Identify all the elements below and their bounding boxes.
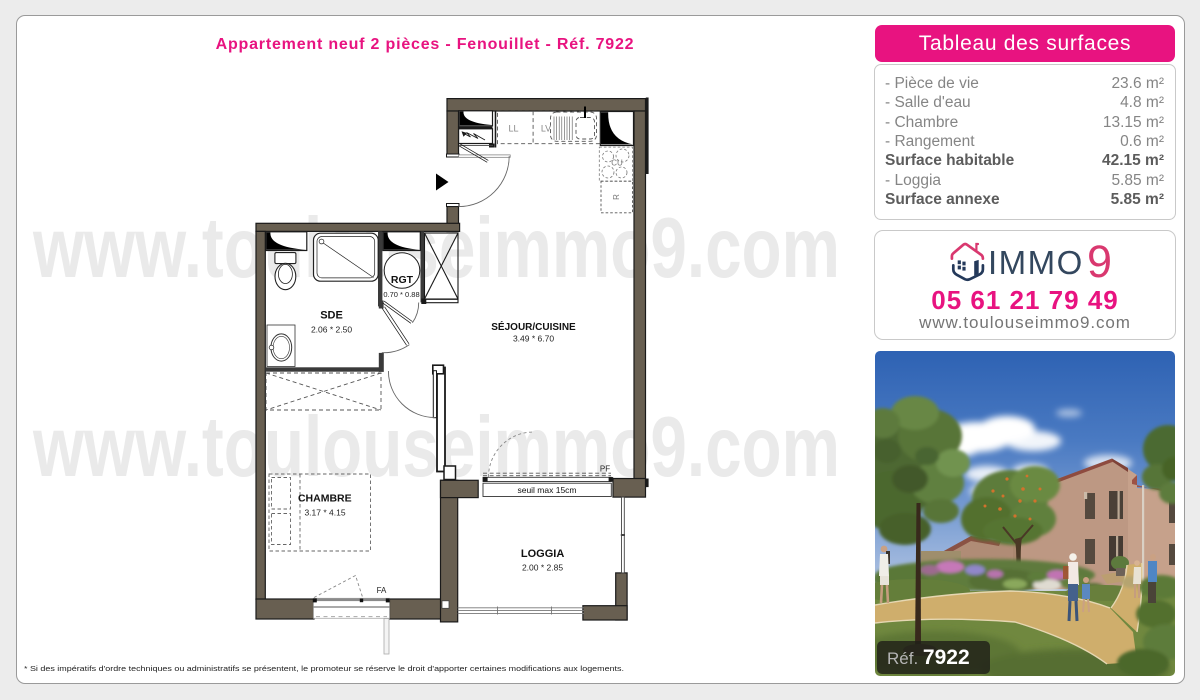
svg-text:* Si des impératifs d'ordre te: * Si des impératifs d'ordre techniques o… — [24, 664, 624, 673]
svg-text:IMMO: IMMO — [988, 244, 1084, 281]
svg-text:9: 9 — [1087, 237, 1112, 283]
